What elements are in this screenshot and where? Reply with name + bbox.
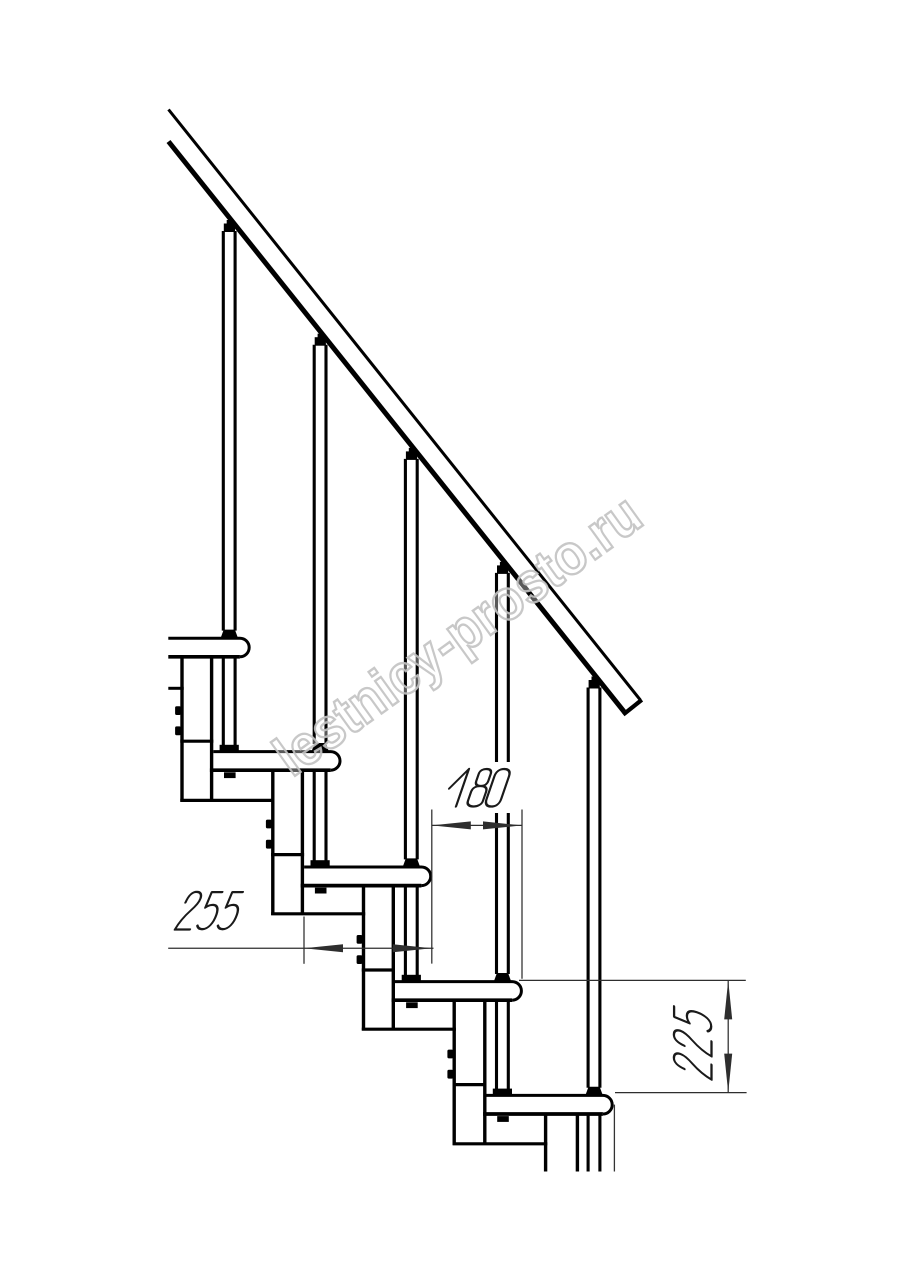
- svg-text:lestnicy-prosto.ru: lestnicy-prosto.ru: [262, 482, 653, 789]
